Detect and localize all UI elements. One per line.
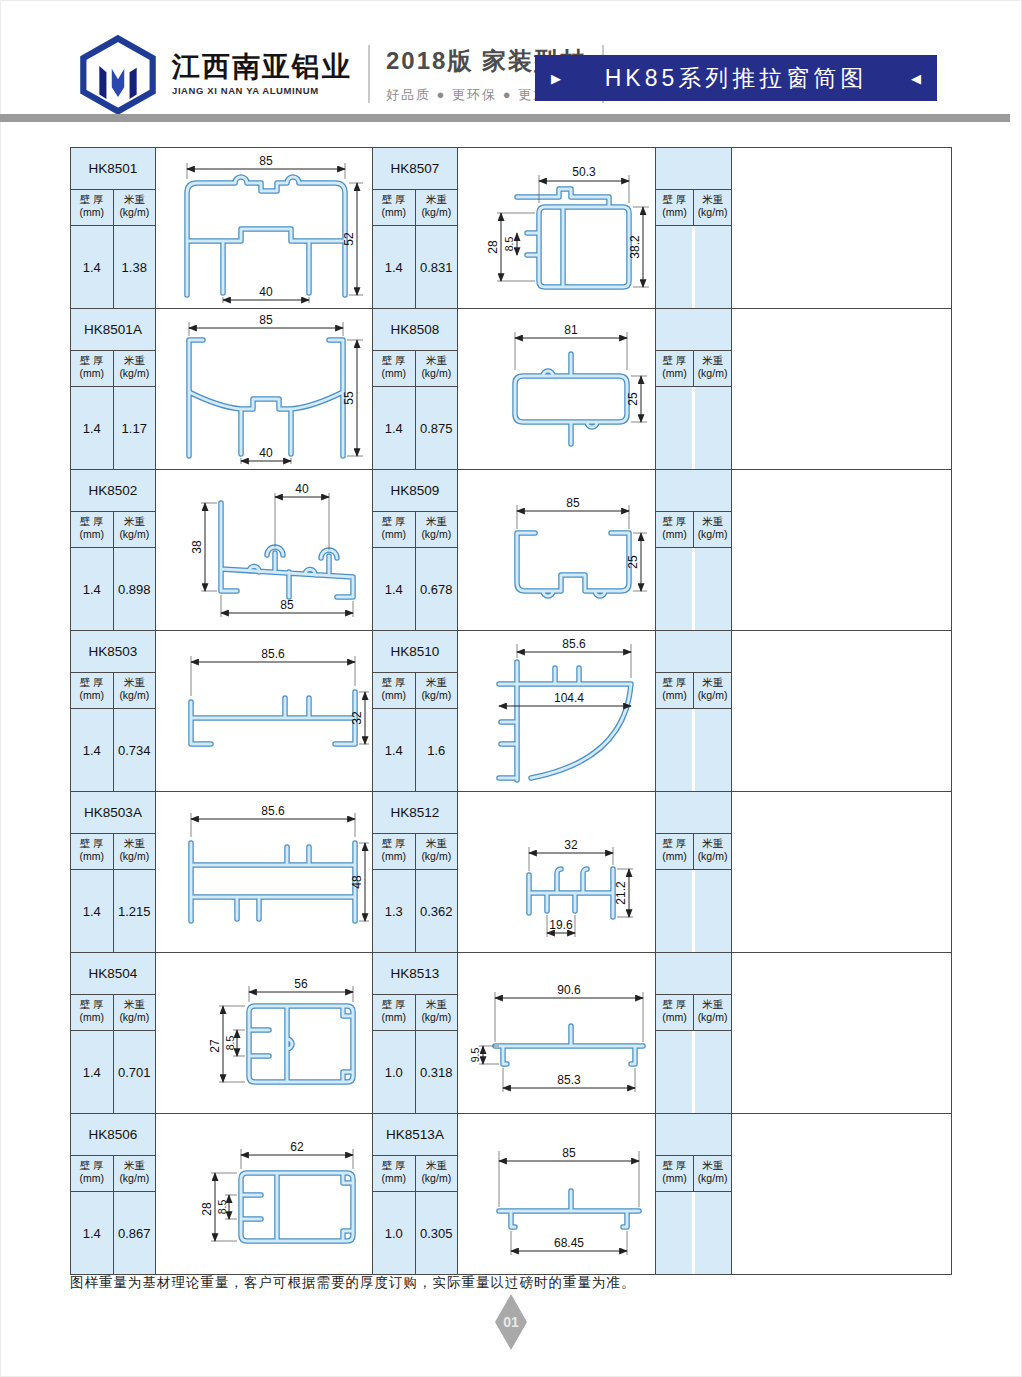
- meter-weight-header: 米重(kg/m): [694, 1156, 731, 1191]
- table-row: HK8506 壁 厚(mm) 米重(kg/m) 1.4 0.867 62 28 …: [71, 1114, 951, 1274]
- profile-drawing: 85.6 104.4: [458, 631, 656, 791]
- label-group-left: HK8501 壁 厚(mm) 米重(kg/m) 1.4 1.38: [71, 148, 156, 308]
- meter-weight-value: 0.362: [416, 870, 458, 952]
- meter-weight-header: 米重(kg/m): [114, 190, 156, 225]
- wall-thickness-header: 壁 厚(mm): [71, 834, 114, 869]
- meter-weight-header: 米重(kg/m): [114, 512, 156, 547]
- wall-thickness-value: 1.4: [373, 709, 416, 791]
- empty-drawing-cell: [732, 631, 951, 791]
- meter-weight-header: 米重(kg/m): [114, 673, 156, 708]
- meter-weight-value: 0.318: [416, 1031, 458, 1113]
- table-row: HK8503A 壁 厚(mm) 米重(kg/m) 1.4 1.215 85.6 …: [71, 792, 951, 953]
- label-group-empty: 壁 厚(mm) 米重(kg/m): [656, 148, 732, 308]
- meter-weight-value: 0.678: [416, 548, 458, 630]
- profile-code: HK8504: [71, 953, 155, 995]
- table-row: HK8503 壁 厚(mm) 米重(kg/m) 1.4 0.734 85.6 3…: [71, 631, 951, 792]
- company-name-en: JIANG XI NAN YA ALUMINUM: [172, 85, 352, 96]
- profile-drawing: 81 25: [458, 309, 656, 469]
- dim-label: 32: [564, 838, 578, 852]
- meter-weight-header: 米重(kg/m): [694, 995, 731, 1030]
- wall-thickness-header: 壁 厚(mm): [656, 834, 694, 869]
- dim-label: 21.2: [614, 881, 628, 905]
- wall-thickness-header: 壁 厚(mm): [656, 190, 694, 225]
- profile-code: HK8502: [71, 470, 155, 512]
- banner-arrow-right-icon: ▶: [535, 71, 577, 86]
- wall-thickness-header: 壁 厚(mm): [71, 512, 114, 547]
- meter-weight-value: 1.6: [416, 709, 458, 791]
- meter-weight-header: 米重(kg/m): [416, 834, 458, 869]
- profile-drawing: 40 38 85: [156, 470, 373, 630]
- empty-drawing-cell: [732, 792, 951, 952]
- dim-label: 85: [259, 154, 273, 168]
- dim-label: 19.6: [549, 918, 573, 932]
- empty-drawing-cell: [732, 470, 951, 630]
- wall-thickness-value: 1.4: [71, 1031, 114, 1113]
- wall-thickness-value: 1.0: [373, 1031, 416, 1113]
- profile-drawing: 85 52 40: [156, 148, 373, 308]
- profile-code: HK8510: [373, 631, 457, 673]
- label-group-right: HK8507 壁 厚(mm) 米重(kg/m) 1.4 0.831: [373, 148, 458, 308]
- dim-label: 8.5: [216, 1200, 228, 1215]
- wall-thickness-header: 壁 厚(mm): [656, 512, 694, 547]
- profile-code: HK8507: [373, 148, 457, 190]
- empty-drawing-cell: [732, 953, 951, 1113]
- dim-label: 85: [280, 598, 294, 612]
- label-group-right: HK8513 壁 厚(mm) 米重(kg/m) 1.0 0.318: [373, 953, 458, 1113]
- profile-code: HK8513: [373, 953, 457, 995]
- meter-weight-header: 米重(kg/m): [694, 351, 731, 386]
- profile-code: HK8512: [373, 792, 457, 834]
- footnote: 图样重量为基材理论重量，客户可根据需要的厚度订购，实际重量以过磅时的重量为准。: [70, 1274, 636, 1292]
- company-name-cn: 江西南亚铝业: [172, 52, 352, 81]
- label-group-left: HK8506 壁 厚(mm) 米重(kg/m) 1.4 0.867: [71, 1114, 156, 1274]
- wall-thickness-value: 1.4: [373, 226, 416, 308]
- wall-thickness-header: 壁 厚(mm): [71, 1156, 114, 1191]
- profile-drawing: 85 68.45: [458, 1114, 656, 1274]
- page-number: 01: [503, 1314, 519, 1330]
- dim-label: 85: [259, 313, 273, 327]
- dim-label: 25: [626, 392, 640, 406]
- meter-weight-value: 0.898: [114, 548, 156, 630]
- profile-code: HK8509: [373, 470, 457, 512]
- dim-label: 104.4: [553, 691, 583, 705]
- empty-drawing-cell: [732, 148, 951, 308]
- empty-drawing-cell: [732, 309, 951, 469]
- empty-drawing-cell: [732, 1114, 951, 1274]
- label-group-left: HK8504 壁 厚(mm) 米重(kg/m) 1.4 0.701: [71, 953, 156, 1113]
- label-group-left: HK8503 壁 厚(mm) 米重(kg/m) 1.4 0.734: [71, 631, 156, 791]
- profile-table: HK8501 壁 厚(mm) 米重(kg/m) 1.4 1.38 85: [70, 147, 952, 1275]
- dim-label: 85: [566, 496, 580, 510]
- wall-thickness-value: 1.4: [373, 387, 416, 469]
- value-cells: 1.4 1.38: [71, 226, 155, 308]
- wall-thickness-header: 壁 厚(mm): [71, 995, 114, 1030]
- profile-drawing: 56 27 8.5: [156, 953, 373, 1113]
- dim-label: 90.6: [557, 983, 581, 997]
- meter-weight-header: 米重(kg/m): [694, 673, 731, 708]
- dim-label: 85: [562, 1146, 576, 1160]
- meter-weight-header: 米重(kg/m): [416, 512, 458, 547]
- wall-thickness-header: 壁 厚(mm): [373, 190, 416, 225]
- dim-label: 85.3: [557, 1073, 581, 1087]
- meter-weight-value: 0.701: [114, 1031, 156, 1113]
- meter-weight-value: 0.867: [114, 1192, 156, 1274]
- meter-weight-header: 米重(kg/m): [114, 1156, 156, 1191]
- label-group-empty: 壁 厚(mm) 米重(kg/m): [656, 470, 732, 630]
- table-row: HK8501 壁 厚(mm) 米重(kg/m) 1.4 1.38 85: [71, 148, 951, 309]
- dim-label: 38: [190, 540, 204, 554]
- meter-weight-header: 米重(kg/m): [694, 512, 731, 547]
- profile-code: HK8501A: [71, 309, 155, 351]
- meter-weight-value: 0.305: [416, 1192, 458, 1274]
- banner-arrow-left-icon: ◀: [895, 71, 937, 86]
- dim-label: 52: [342, 232, 356, 246]
- dim-label: 56: [294, 977, 308, 991]
- dim-label: 28: [486, 240, 500, 254]
- dim-label: 85.6: [261, 804, 285, 818]
- dim-label: 68.45: [553, 1236, 583, 1250]
- dim-label: 40: [259, 446, 273, 460]
- profile-code: HK8513A: [373, 1114, 457, 1156]
- meter-weight-value: 0.875: [416, 387, 458, 469]
- dim-label: 50.3: [572, 165, 596, 179]
- wall-thickness-header: 壁 厚(mm): [71, 673, 114, 708]
- profile-code: HK8501: [71, 148, 155, 190]
- wall-thickness-header: 壁 厚(mm): [373, 512, 416, 547]
- column-headers: 壁 厚(mm) 米重(kg/m): [71, 190, 155, 226]
- table-row: HK8502 壁 厚(mm) 米重(kg/m) 1.4 0.898 40 38 …: [71, 470, 951, 631]
- label-group-empty: 壁 厚(mm) 米重(kg/m): [656, 792, 732, 952]
- wall-thickness-value: 1.4: [71, 226, 114, 308]
- dim-label: 27: [208, 1039, 222, 1053]
- meter-weight-value: 1.215: [114, 870, 156, 952]
- wall-thickness-header: 壁 厚(mm): [373, 1156, 416, 1191]
- label-group-left: HK8501A 壁 厚(mm) 米重(kg/m) 1.4 1.17: [71, 309, 156, 469]
- dim-label: 9.5: [469, 1048, 481, 1063]
- profile-code: HK8506: [71, 1114, 155, 1156]
- dim-label: 38.2: [628, 235, 642, 259]
- label-group-right: HK8510 壁 厚(mm) 米重(kg/m) 1.4 1.6: [373, 631, 458, 791]
- profile-drawing: 62 28 8.5: [156, 1114, 373, 1274]
- dim-label: 25: [626, 555, 640, 569]
- wall-thickness-header: 壁 厚(mm): [373, 673, 416, 708]
- label-group-right: HK8508 壁 厚(mm) 米重(kg/m) 1.4 0.875: [373, 309, 458, 469]
- meter-weight-header: 米重(kg/m): [694, 190, 731, 225]
- meter-weight-header: 米重(kg/m): [114, 995, 156, 1030]
- meter-weight-header: 米重(kg/m): [694, 834, 731, 869]
- label-group-right: HK8512 壁 厚(mm) 米重(kg/m) 1.3 0.362: [373, 792, 458, 952]
- profile-drawing: 85.6 32: [156, 631, 373, 791]
- dim-label: 8.5: [503, 237, 515, 252]
- catalog-page: 江西南亚铝业 JIANG XI NAN YA ALUMINUM 2018版 家装…: [0, 0, 1022, 1377]
- meter-weight-value: 0.734: [114, 709, 156, 791]
- table-row: HK8504 壁 厚(mm) 米重(kg/m) 1.4 0.701 56 27 …: [71, 953, 951, 1114]
- meter-weight-header: 米重(kg/m): [416, 190, 458, 225]
- wall-thickness-value: 1.4: [71, 870, 114, 952]
- dim-label: 40: [295, 482, 309, 496]
- dim-label: 28: [200, 1202, 214, 1216]
- label-group-right: HK8513A 壁 厚(mm) 米重(kg/m) 1.0 0.305: [373, 1114, 458, 1274]
- wall-thickness-value: 1.4: [373, 548, 416, 630]
- meter-weight-header: 米重(kg/m): [114, 834, 156, 869]
- series-banner: ▶ HK85系列推拉窗简图 ◀: [535, 55, 937, 101]
- label-group-right: HK8509 壁 厚(mm) 米重(kg/m) 1.4 0.678: [373, 470, 458, 630]
- label-group-empty: 壁 厚(mm) 米重(kg/m): [656, 953, 732, 1113]
- wall-thickness-header: 壁 厚(mm): [373, 834, 416, 869]
- profile-code: HK8508: [373, 309, 457, 351]
- wall-thickness-header: 壁 厚(mm): [656, 1156, 694, 1191]
- series-title: HK85系列推拉窗简图: [577, 63, 895, 94]
- wall-thickness-header: 壁 厚(mm): [71, 190, 114, 225]
- meter-weight-header: 米重(kg/m): [114, 351, 156, 386]
- profile-drawing: 85 25: [458, 470, 656, 630]
- meter-weight-value: 1.17: [114, 387, 156, 469]
- dim-label: 85.6: [562, 637, 586, 651]
- wall-thickness-header: 壁 厚(mm): [71, 351, 114, 386]
- page-number-badge: 01: [495, 1294, 527, 1350]
- label-group-left: HK8502 壁 厚(mm) 米重(kg/m) 1.4 0.898: [71, 470, 156, 630]
- wall-thickness-value: 1.0: [373, 1192, 416, 1274]
- profile-drawing: 50.3 38.2 28 8.5: [458, 148, 656, 308]
- profile-drawing: 32 21.2 19.6: [458, 792, 656, 952]
- wall-thickness-value: 1.4: [71, 387, 114, 469]
- wall-thickness-header: 壁 厚(mm): [373, 995, 416, 1030]
- meter-weight-value: 1.38: [114, 226, 156, 308]
- header-divider: [368, 45, 370, 103]
- meter-weight-header: 米重(kg/m): [416, 351, 458, 386]
- dim-label: 40: [259, 285, 273, 299]
- company-logo-icon: [72, 34, 164, 114]
- profile-drawing: 85 55 40: [156, 309, 373, 469]
- label-group-empty: 壁 厚(mm) 米重(kg/m): [656, 631, 732, 791]
- table-row: HK8501A 壁 厚(mm) 米重(kg/m) 1.4 1.17 85 55 …: [71, 309, 951, 470]
- profile-code: HK8503: [71, 631, 155, 673]
- wall-thickness-value: 1.3: [373, 870, 416, 952]
- dim-label: 32: [350, 711, 364, 725]
- profile-drawing: 90.6 9.5 85.3: [458, 953, 656, 1113]
- wall-thickness-header: 壁 厚(mm): [656, 673, 694, 708]
- dim-label: 85.6: [261, 647, 285, 661]
- profile-drawing: 85.6 48: [156, 792, 373, 952]
- profile-code: HK8503A: [71, 792, 155, 834]
- dim-label: 81: [564, 323, 578, 337]
- dim-label: 62: [290, 1140, 304, 1154]
- company-name-block: 江西南亚铝业 JIANG XI NAN YA ALUMINUM: [172, 52, 352, 95]
- meter-weight-header: 米重(kg/m): [416, 995, 458, 1030]
- wall-thickness-value: 1.4: [71, 548, 114, 630]
- wall-thickness-header: 壁 厚(mm): [656, 995, 694, 1030]
- label-group-empty: 壁 厚(mm) 米重(kg/m): [656, 309, 732, 469]
- label-group-left: HK8503A 壁 厚(mm) 米重(kg/m) 1.4 1.215: [71, 792, 156, 952]
- wall-thickness-value: 1.4: [71, 709, 114, 791]
- header-rule: [0, 114, 1010, 122]
- wall-thickness-header: 壁 厚(mm): [373, 351, 416, 386]
- meter-weight-header: 米重(kg/m): [416, 673, 458, 708]
- dim-label: 55: [342, 391, 356, 405]
- dim-label: 8.5: [224, 1036, 236, 1051]
- wall-thickness-header: 壁 厚(mm): [656, 351, 694, 386]
- wall-thickness-value: 1.4: [71, 1192, 114, 1274]
- dim-label: 48: [350, 875, 364, 889]
- meter-weight-value: 0.831: [416, 226, 458, 308]
- label-group-empty: 壁 厚(mm) 米重(kg/m): [656, 1114, 732, 1274]
- meter-weight-header: 米重(kg/m): [416, 1156, 458, 1191]
